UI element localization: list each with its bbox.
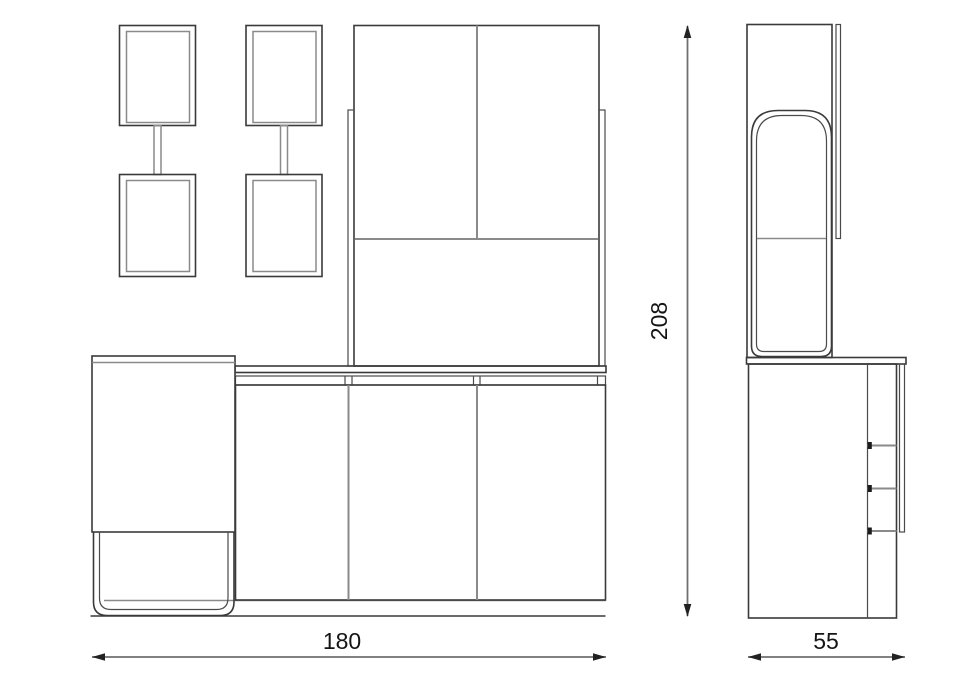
stool-leg-frame-inner: [100, 532, 229, 610]
stool: [92, 356, 235, 616]
wall-unit-left-connector-bar: [154, 126, 161, 175]
dimension-depth: 55: [748, 628, 905, 661]
drawer-divider-notch: [868, 442, 872, 449]
wall-unit-left-bottom-frame: [120, 175, 196, 277]
dimension-width-arrow-left: [92, 653, 105, 661]
side-support-loop-outer: [752, 111, 832, 357]
base-cabinet-top-rail: [236, 376, 606, 385]
mirror-support-post-right: [599, 110, 605, 366]
side-drawer-stack: [868, 442, 897, 535]
side-countertop: [747, 358, 907, 365]
dimension-depth-arrow-left: [748, 653, 761, 661]
wall-unit-left-top-frame: [120, 26, 196, 126]
wall-unit-right-bottom-frame: [246, 175, 322, 277]
stool-leg-frame-outer: [94, 532, 235, 616]
dimension-width-arrow-right: [593, 653, 606, 661]
base-cabinet-door-area: [236, 385, 606, 600]
drawing-canvas: 180 208 55: [0, 0, 978, 693]
dimension-width-label: 180: [323, 628, 361, 654]
dimension-height: 208: [646, 25, 691, 617]
dimension-depth-label: 55: [813, 628, 839, 654]
side-view: [747, 25, 907, 619]
dimension-height-arrow-bottom: [684, 604, 692, 617]
stool-seat: [92, 356, 235, 532]
wall-unit-right-top-frame-inner: [253, 32, 316, 123]
mirror-support-post-left: [348, 110, 354, 366]
mirror-cabinet: [348, 26, 605, 367]
furniture-elevation-drawing: 180 208 55: [0, 0, 978, 693]
drawer-divider-notch: [868, 528, 872, 535]
side-back-strip: [900, 364, 905, 532]
wall-unit-right-connector-bar: [281, 126, 288, 175]
dimension-width: 180: [92, 628, 606, 661]
side-support-loop-inner: [757, 116, 827, 352]
wall-unit-left: [120, 26, 196, 277]
wall-unit-left-top-frame-inner: [127, 32, 190, 123]
side-base-cabinet-box: [749, 364, 897, 618]
side-back-panel: [747, 25, 832, 358]
wall-unit-right: [246, 26, 322, 277]
drawer-divider-notch: [868, 485, 872, 492]
base-cabinet-countertop: [235, 366, 606, 373]
wall-unit-right-bottom-frame-inner: [253, 181, 316, 272]
wall-unit-right-top-frame: [246, 26, 322, 126]
front-view: [91, 26, 607, 617]
dimension-height-arrow-top: [684, 25, 692, 38]
dimension-depth-arrow-right: [892, 653, 905, 661]
wall-unit-left-bottom-frame-inner: [127, 181, 190, 272]
dimension-height-label: 208: [646, 302, 672, 340]
side-mirror-edge: [836, 25, 841, 239]
